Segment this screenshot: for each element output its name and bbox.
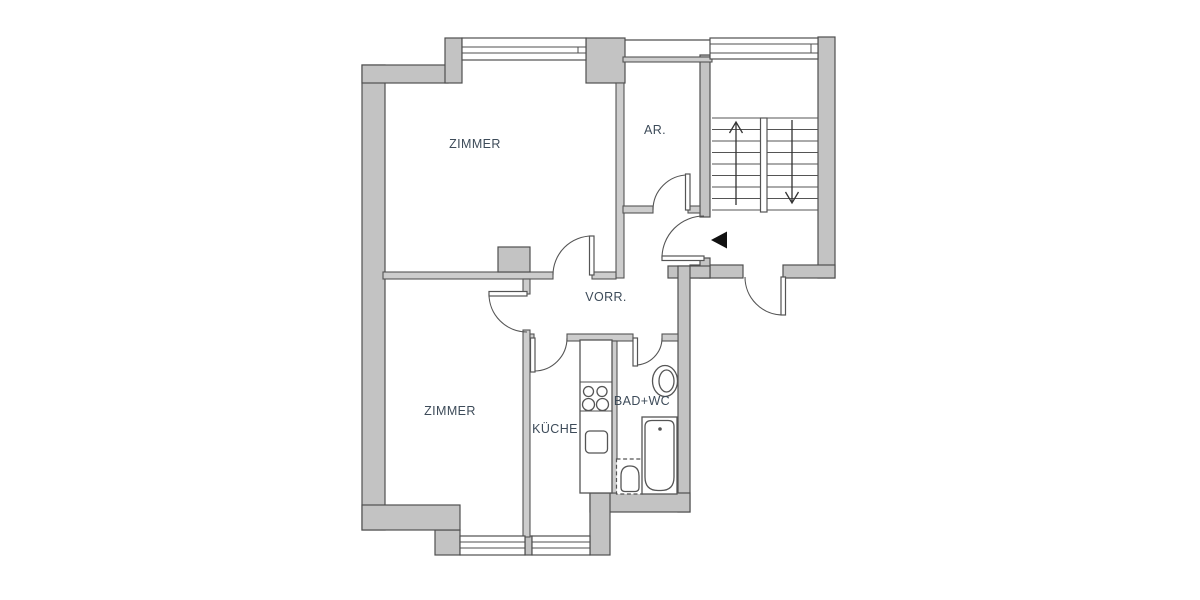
door-swing-icon [662, 216, 704, 261]
door-swing-icon [633, 338, 662, 366]
bathroom-fixtures [617, 366, 678, 495]
stair-stringer [761, 118, 768, 212]
room-label-vorraum: VORR. [585, 290, 627, 304]
kitchen-sink-icon [586, 431, 608, 453]
kitchen-counter [580, 340, 612, 493]
staircase [712, 118, 818, 212]
toilet-icon [617, 459, 643, 494]
window-icon [460, 536, 525, 555]
door-swing-icon [653, 174, 690, 210]
room-label-kueche: KÜCHE [532, 422, 578, 436]
room-label-bad-wc: BAD+WC [614, 394, 670, 408]
stairs-down-arrow-icon [786, 120, 799, 203]
floor-plan: ZIMMER AR. VORR. ZIMMER KÜCHE BAD+WC [0, 0, 1200, 600]
entrance-arrow-icon [711, 232, 727, 249]
room-label-abstellraum: AR. [644, 123, 666, 137]
window-icon [532, 536, 590, 555]
window-icon [462, 38, 586, 60]
kitchen-fixtures [580, 340, 612, 493]
floor-plan-canvas: ZIMMER AR. VORR. ZIMMER KÜCHE BAD+WC [0, 0, 1200, 600]
bathtub-icon [642, 417, 677, 494]
window-icon [710, 38, 818, 59]
room-label-zimmer-bottom: ZIMMER [424, 404, 476, 418]
washbasin-icon [653, 366, 678, 397]
room-label-zimmer-top: ZIMMER [449, 137, 501, 151]
door-swing-icon [745, 277, 786, 315]
chimney-pier [498, 247, 530, 272]
door-swing-icon [553, 236, 594, 275]
door-swing-icon [489, 292, 527, 333]
door-swing-icon [531, 338, 568, 372]
